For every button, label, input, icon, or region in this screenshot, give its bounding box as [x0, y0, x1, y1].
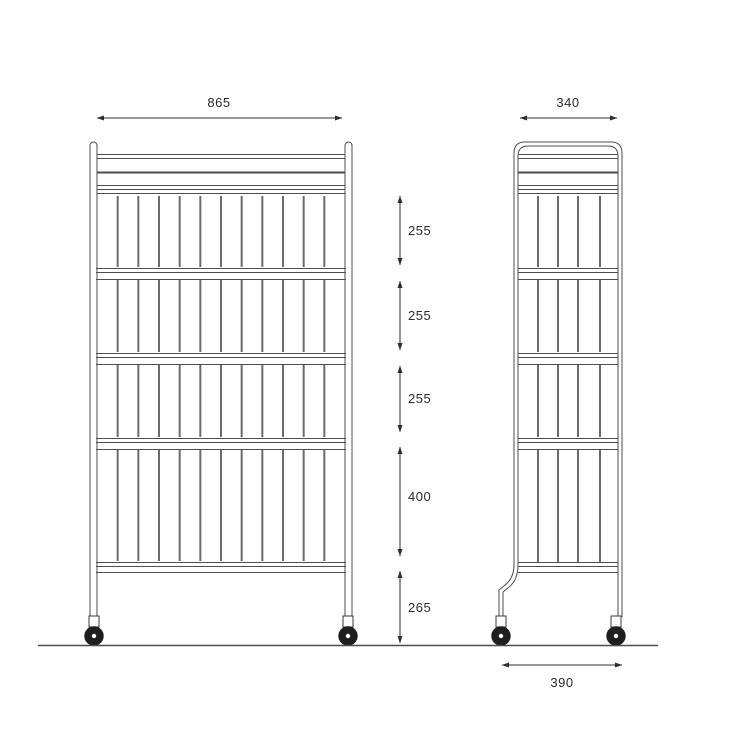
side-shelf-rails: [518, 269, 618, 573]
side-casters: [492, 616, 625, 645]
technical-drawing-canvas: 865 340 255 255 255 400 265 390: [0, 0, 750, 750]
front-width-dim-label: 865: [197, 96, 241, 110]
side-frame-inner: [518, 146, 618, 565]
front-left-post: [90, 142, 97, 618]
side-wire-bars: [538, 196, 600, 562]
shelf1-height-dim-label: 255: [408, 224, 431, 238]
shelf3-height-dim-label: 255: [408, 392, 431, 406]
side-top-rails: [518, 155, 618, 194]
shelf4-height-dim-label: 400: [408, 490, 431, 504]
side-rear-leg: [618, 565, 622, 617]
side-view: [492, 142, 625, 645]
front-casters: [85, 616, 357, 645]
front-view: [85, 142, 357, 645]
front-wire-bars: [118, 196, 325, 561]
side-depth-dim-label: 340: [546, 96, 590, 110]
shelf2-height-dim-label: 255: [408, 309, 431, 323]
wheelbase-dim-label: 390: [540, 676, 584, 690]
trolley-line-drawing: [0, 0, 750, 750]
side-front-leg: [499, 565, 518, 617]
front-right-post: [345, 142, 352, 618]
leg-height-dim-label: 265: [408, 601, 431, 615]
front-top-rails: [97, 155, 345, 194]
